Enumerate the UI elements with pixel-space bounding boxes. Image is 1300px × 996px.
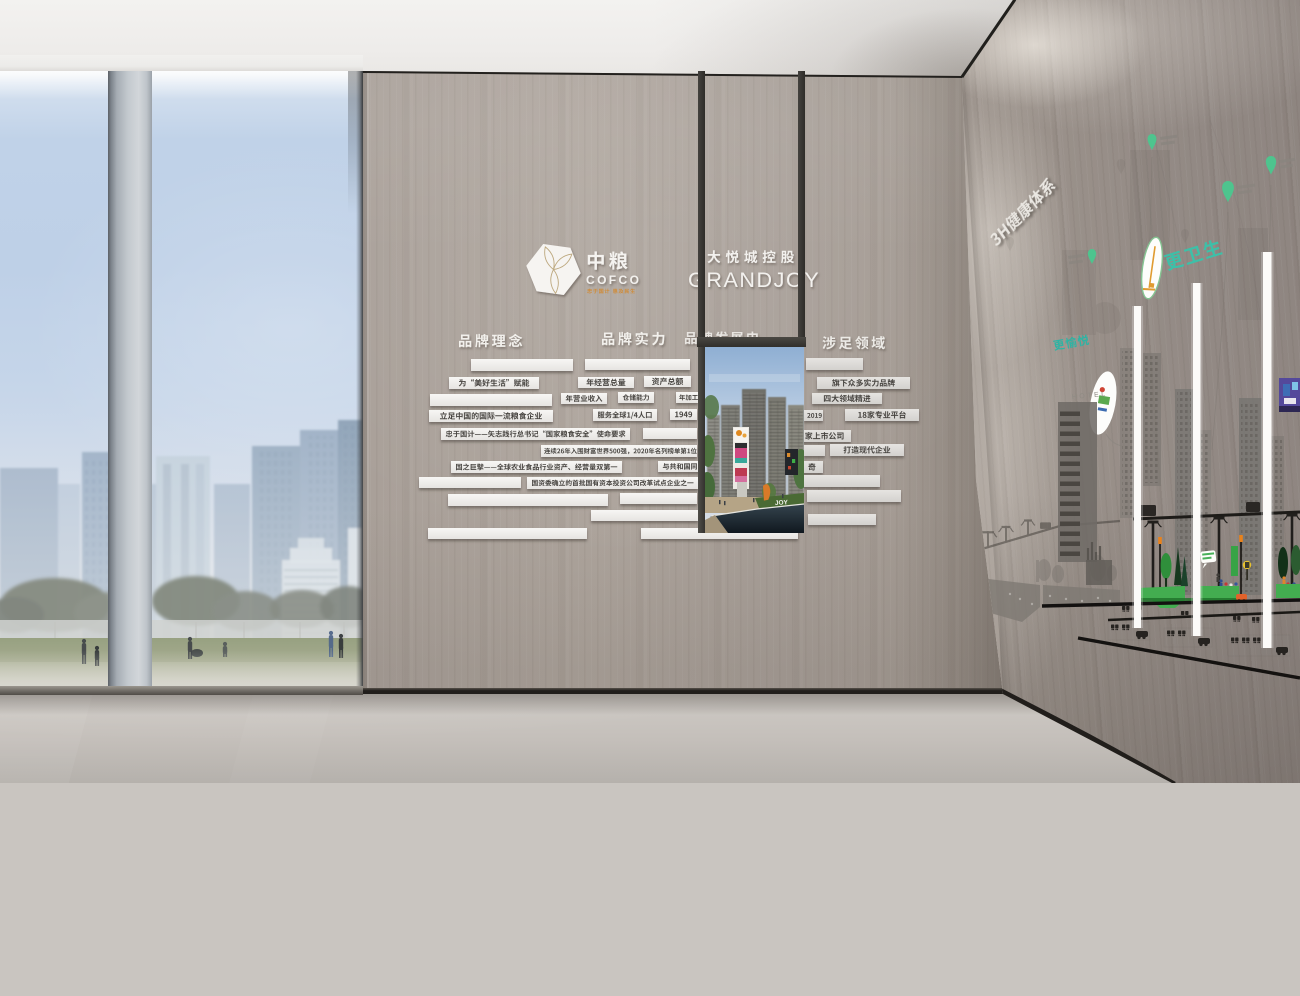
svg-text:COFCO: COFCO xyxy=(586,273,641,287)
